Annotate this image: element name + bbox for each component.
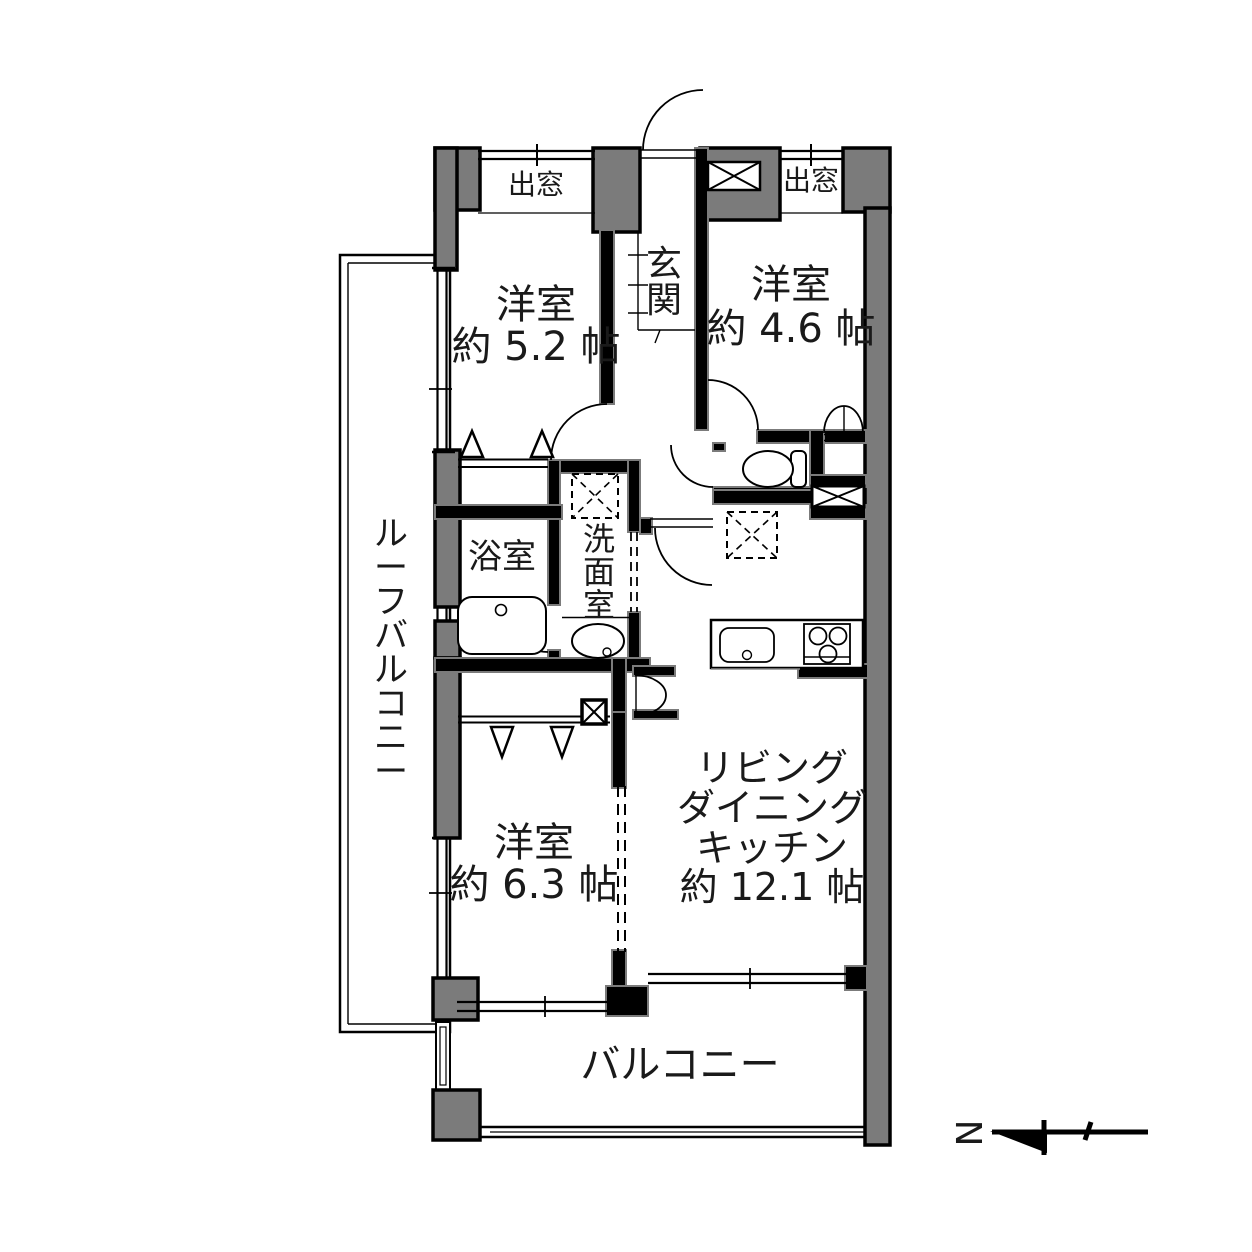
bathtub-faucet [496, 605, 507, 616]
washer-space-dashed [572, 474, 618, 518]
bay-window-right-label: 出窓 [783, 164, 839, 197]
shaft-box [582, 700, 606, 724]
balcony-divider-panel [436, 1022, 450, 1090]
washbasin [572, 624, 624, 658]
ldk-label-line3: キッチン [696, 826, 848, 870]
balcony-label: バルコニー [580, 1042, 779, 1088]
pipe-space-box [812, 486, 864, 507]
ldk-label-line2: ダイニング [677, 786, 867, 830]
fridge-space-dashed [727, 512, 777, 558]
balcony-railing [478, 1127, 890, 1137]
bay-window-left-label: 出窓 [508, 168, 564, 201]
compass-north-label: N [950, 1120, 991, 1147]
sliding-partition-dashed [618, 786, 625, 952]
compass: N [950, 1120, 1148, 1155]
storage-door-top-arc [635, 675, 666, 695]
meter-box [708, 162, 760, 190]
bedroom2-door-arc [708, 380, 758, 430]
ldk-door-arc [655, 528, 712, 585]
bedroom3-area: 約 6.3 帖 [449, 862, 618, 908]
ldk-area: 約 12.1 帖 [680, 865, 865, 909]
roof-balcony-label: ルーフバルコニー [374, 514, 408, 792]
compass-tick [1085, 1122, 1091, 1140]
ldk-label-line1: リビング [696, 746, 848, 790]
floor-plan-canvas: 出窓 出窓 玄関 洋室 約 5.2 帖 洋室 約 4.6 帖 浴室 洗面室 洋室… [0, 0, 1252, 1252]
toilet-door-arc [671, 445, 713, 487]
bedroom3-label: 洋室 [494, 820, 574, 866]
washroom-label: 洗面室 [583, 520, 615, 624]
entrance-door-arc [643, 90, 703, 150]
bedroom1-label: 洋室 [496, 282, 576, 328]
toilet-bowl [743, 451, 793, 487]
bedroom1-door-arc [551, 404, 607, 460]
closet-door-right-arc [844, 406, 863, 433]
bathroom-label: 浴室 [468, 537, 536, 577]
washroom-sliding-door-dashed [631, 532, 637, 612]
closet-door-left-arc [824, 406, 844, 433]
bedroom2-area: 約 4.6 帖 [706, 306, 875, 352]
floor-plan: 出窓 出窓 玄関 洋室 約 5.2 帖 洋室 約 4.6 帖 浴室 洗面室 洋室… [0, 0, 1252, 1252]
entrance-label: 玄関 [646, 244, 682, 321]
bedroom1-area: 約 5.2 帖 [451, 324, 620, 370]
bedroom2-label: 洋室 [751, 262, 831, 308]
